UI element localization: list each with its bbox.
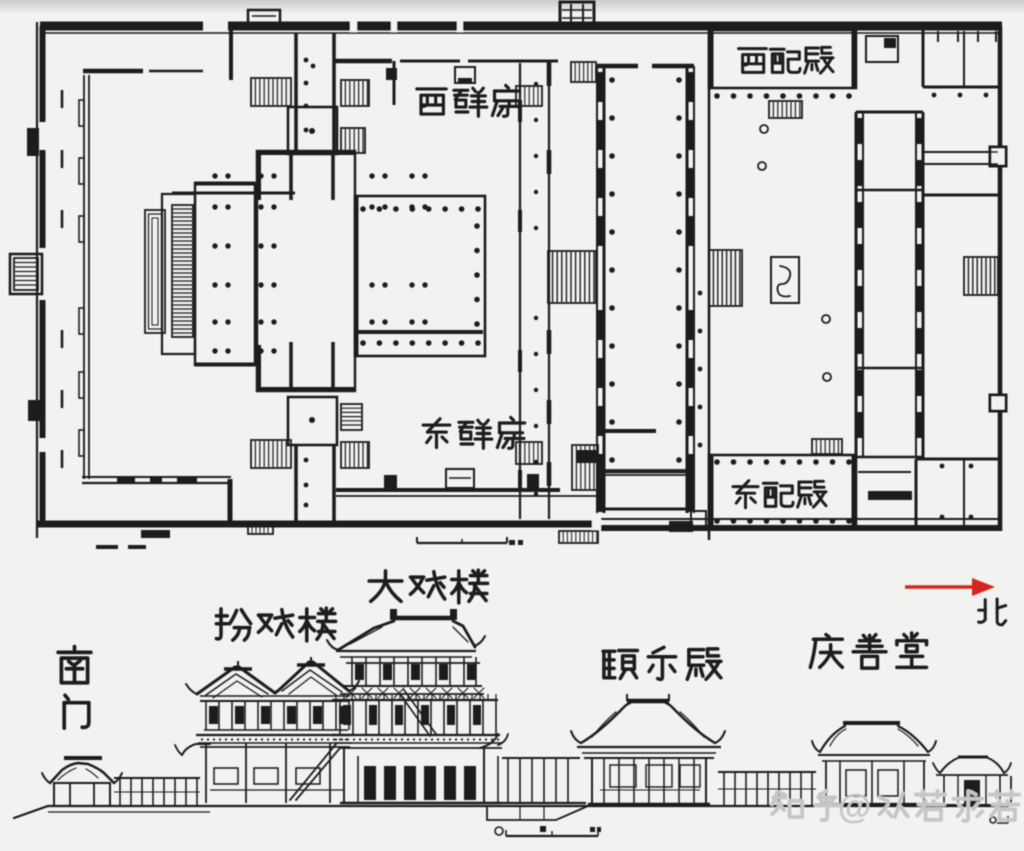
svg-text:@: @ [838, 788, 871, 826]
